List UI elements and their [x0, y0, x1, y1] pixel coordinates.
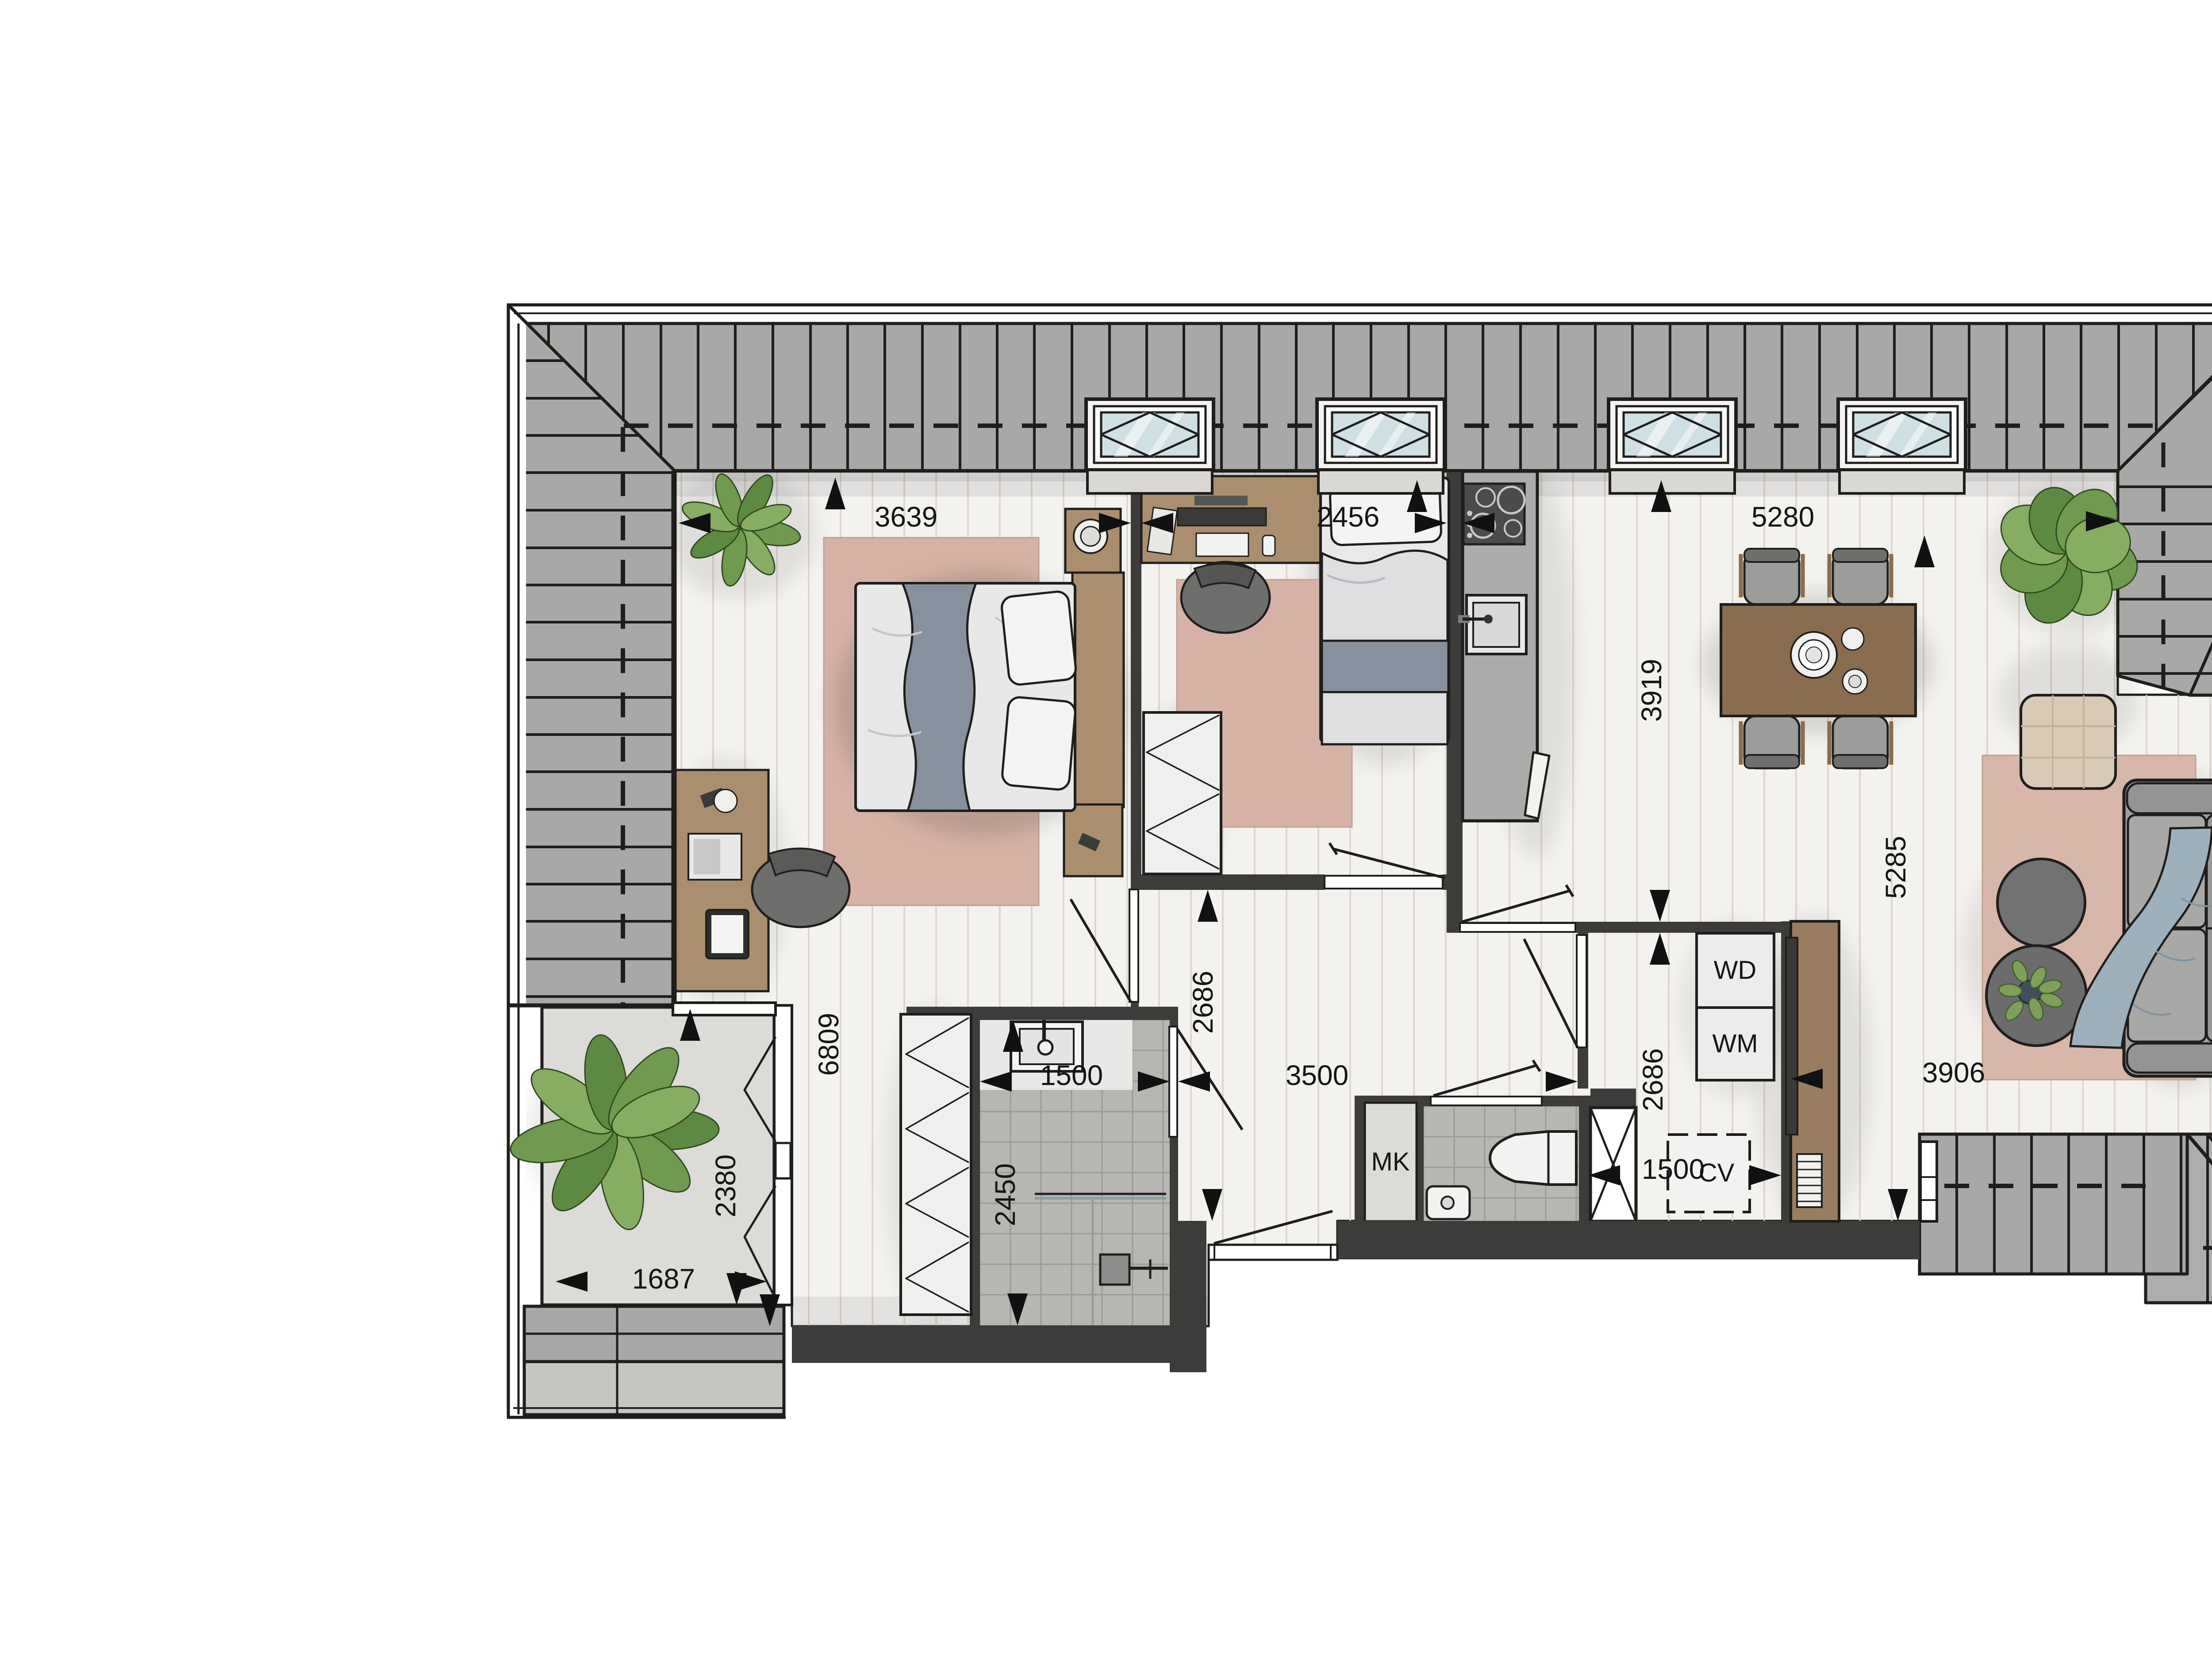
svg-text:2686: 2686: [1637, 1048, 1669, 1111]
svg-text:3500: 3500: [1286, 1059, 1348, 1091]
svg-text:MK: MK: [1371, 1147, 1410, 1176]
svg-text:1500: 1500: [1040, 1059, 1103, 1091]
svg-text:3906: 3906: [1922, 1057, 1985, 1089]
svg-text:WM: WM: [1712, 1029, 1758, 1058]
svg-text:1500: 1500: [1642, 1153, 1705, 1185]
svg-text:2456: 2456: [1317, 501, 1379, 533]
svg-text:2380: 2380: [710, 1154, 741, 1217]
svg-text:5285: 5285: [1880, 836, 1912, 899]
svg-text:5280: 5280: [1751, 501, 1814, 533]
svg-text:2686: 2686: [1187, 971, 1219, 1034]
svg-text:2450: 2450: [989, 1163, 1021, 1226]
svg-text:1687: 1687: [632, 1263, 695, 1295]
svg-text:3919: 3919: [1636, 659, 1667, 722]
svg-text:6809: 6809: [813, 1013, 845, 1076]
svg-text:3639: 3639: [875, 501, 937, 533]
svg-text:WD: WD: [1714, 956, 1757, 985]
